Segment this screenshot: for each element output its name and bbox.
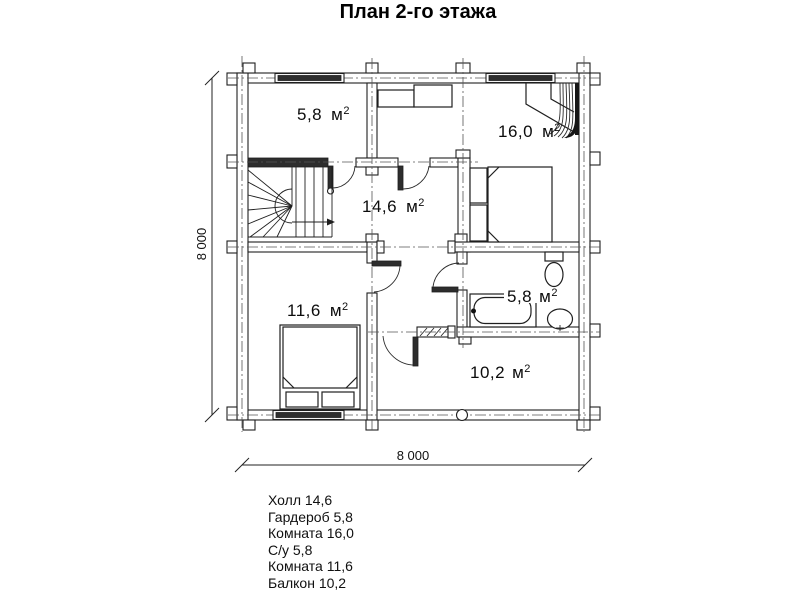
legend-item-wc: С/у 5,8 bbox=[268, 542, 354, 559]
door-knob-icon bbox=[328, 188, 334, 194]
legend: Холл 14,6 Гардероб 5,8 Комната 16,0 С/у … bbox=[268, 492, 354, 591]
legend-item-room11: Комната 11,6 bbox=[268, 558, 354, 575]
legend-item-balcony: Балкон 10,2 bbox=[268, 575, 354, 592]
room-label-bedroom16: 16,0м2 bbox=[498, 122, 561, 141]
door-bedroom11 bbox=[372, 261, 401, 292]
window-bedroom16 bbox=[486, 74, 555, 83]
bath-tap-icon bbox=[471, 309, 476, 314]
dimension-width-label: 8 000 bbox=[397, 448, 430, 463]
wall-bathroom-left-a bbox=[457, 252, 467, 264]
room-label-balcony: 10,2м2 bbox=[470, 363, 531, 382]
room-label-bedroom11: 11,6м2 bbox=[287, 301, 349, 320]
hall-cabinet-icon bbox=[378, 85, 452, 107]
stair-guard-wall bbox=[248, 158, 328, 167]
window-bedroom11 bbox=[273, 411, 344, 420]
window-wardrobe bbox=[275, 74, 344, 83]
bed-bedroom16-icon bbox=[470, 167, 552, 242]
legend-item-room16: Комната 16,0 bbox=[268, 525, 354, 542]
bed-bedroom11-icon bbox=[280, 325, 360, 409]
room-label-wardrobe: 5,8м2 bbox=[297, 105, 350, 124]
legend-item-wardrobe: Гардероб 5,8 bbox=[268, 509, 354, 526]
toilet-icon bbox=[545, 252, 563, 287]
wall-left bbox=[237, 73, 248, 420]
wall-right bbox=[579, 73, 590, 420]
dimension-height-label: 8 000 bbox=[194, 228, 209, 261]
door-bedroom16 bbox=[398, 166, 429, 190]
room-label-hall: 14,6м2 bbox=[362, 197, 425, 216]
wall-hall-top-2 bbox=[430, 158, 458, 167]
floor-plan-page: План 2-го этажа bbox=[0, 0, 800, 600]
door-bathroom bbox=[432, 263, 459, 292]
legend-item-hall: Холл 14,6 bbox=[268, 492, 354, 509]
dimension-bottom: 8 000 bbox=[235, 448, 592, 472]
log-end-circle bbox=[457, 410, 468, 421]
staircase bbox=[248, 167, 335, 237]
door-balcony bbox=[383, 336, 418, 366]
wall-hall-top-1 bbox=[356, 158, 398, 167]
dimension-left: 8 000 bbox=[194, 71, 219, 422]
arrow-head-icon bbox=[327, 219, 335, 226]
floor-plan-drawing: 5,8м2 16,0м2 14,6м2 11,6м2 5,8м2 10,2м2 … bbox=[0, 0, 800, 600]
